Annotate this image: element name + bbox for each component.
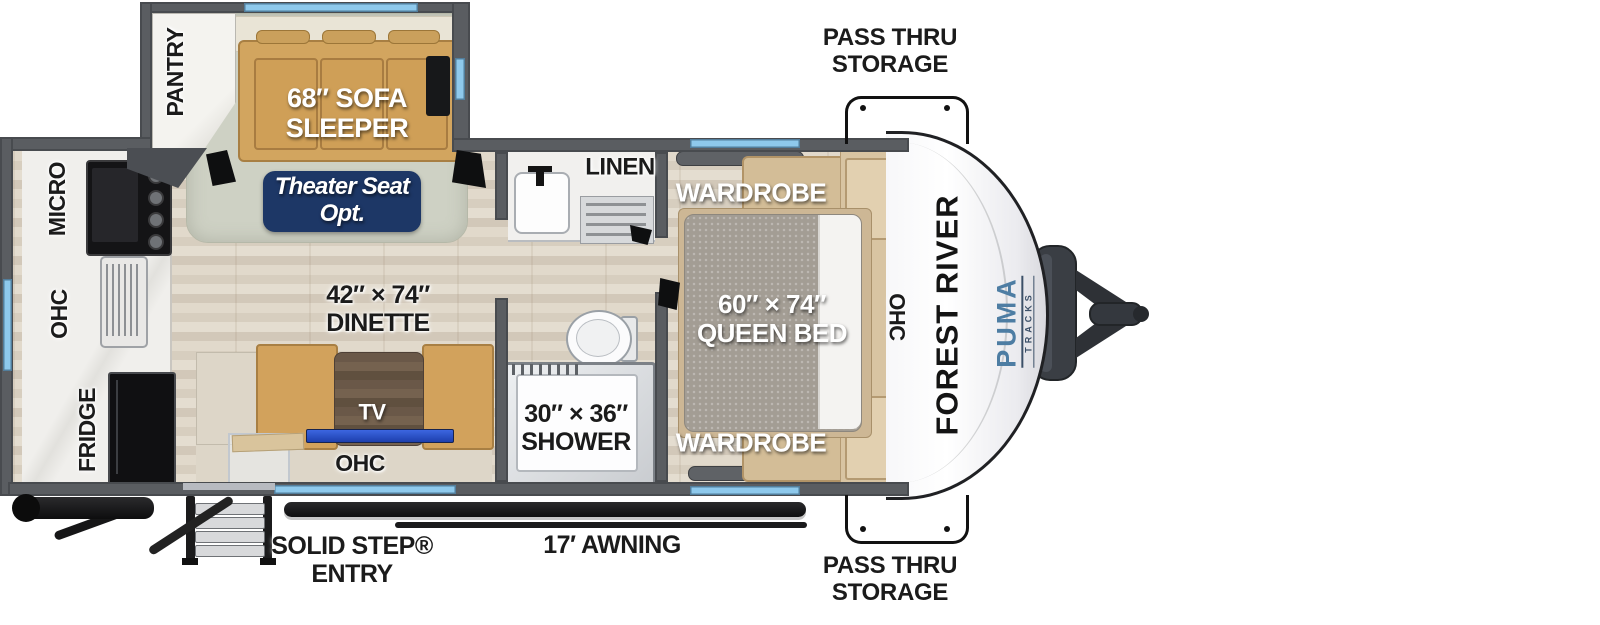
shower-label: 30″ × 36″SHOWER [521, 400, 631, 456]
sofa-headrest [388, 30, 440, 44]
queen-bed-label: 60″ × 74″QUEEN BED [697, 290, 847, 348]
micro-label: MICRO [45, 162, 71, 236]
bedroom-door-swing [658, 278, 680, 310]
rv-floorplan: PANTRY 68″ SOFASLEEPER Theater SeatOpt. … [0, 0, 1600, 625]
kitchen-ohc-label: OHC [47, 289, 73, 339]
bath-wall-left-lower [495, 298, 508, 482]
wardrobe-bottom-label: WARDROBE [676, 428, 827, 457]
top-wall-main [452, 138, 909, 152]
pass-thru-door-bottom [845, 495, 969, 544]
slideout-window [244, 3, 418, 12]
step-tread [195, 531, 265, 543]
bath-wall-left-upper [495, 152, 508, 220]
tv-label: TV [358, 401, 385, 426]
sink-grate [106, 264, 138, 336]
fridge [108, 372, 176, 486]
sofa-headrest [256, 30, 310, 44]
pantry-label: PANTRY [163, 28, 189, 117]
bedroom-window-top [690, 139, 800, 148]
door-latch-dot [860, 105, 866, 111]
slide-trim-right [452, 150, 486, 188]
sofa-headrest [322, 30, 376, 44]
rear-bumper-cap [12, 494, 40, 522]
door-latch-dot [944, 526, 950, 532]
dinette-ohc-label: OHC [335, 451, 385, 477]
dinette-label: 42″ × 74″DINETTE [326, 281, 430, 337]
stove-burner [148, 190, 164, 206]
forest-river-brand: FOREST RIVER [931, 194, 966, 435]
entry-threshold [183, 483, 275, 490]
puma-logo-text: PUMA [991, 276, 1023, 368]
stove-burner [148, 234, 164, 250]
sofa-end-cabinet [426, 56, 450, 116]
awning-rail [395, 522, 807, 528]
fridge-door-line [116, 380, 118, 474]
step-tread [195, 545, 265, 557]
bath-wall-right-lower [655, 292, 668, 482]
shower-towel-bar [512, 364, 582, 375]
bath-wall-right-upper [655, 152, 668, 238]
bath-faucet-stem [536, 166, 544, 186]
linen-label: LINEN [585, 155, 655, 182]
sofa-label: 68″ SOFASLEEPER [286, 83, 409, 143]
pass-thru-top-label: PASS THRUSTORAGE [823, 25, 957, 79]
bedroom-ohc-label: OHC [884, 293, 909, 340]
oven-door [92, 168, 138, 242]
tv-bar [306, 429, 454, 443]
entry-shelf [232, 433, 305, 453]
theater-seat-option-label: Theater SeatOpt. [275, 174, 409, 228]
puma-tracks-logo: PUMA TRACKS [991, 276, 1034, 368]
door-latch-dot [860, 526, 866, 532]
rear-window [3, 279, 12, 371]
awning-tube [284, 502, 806, 517]
pass-thru-door-top [845, 96, 969, 144]
toilet-seat [576, 319, 620, 357]
solid-step-entry-label: SOLID STEP®ENTRY [271, 532, 433, 588]
stove-burner [148, 212, 164, 228]
wardrobe-top-label: WARDROBE [676, 178, 827, 207]
slideout-left-wall [140, 2, 152, 151]
bedroom-window-bottom [690, 486, 800, 495]
puma-tracks-text: TRACKS [1024, 276, 1035, 368]
pass-thru-bottom-label: PASS THRUSTORAGE [823, 553, 957, 607]
step-foot [182, 558, 198, 565]
door-latch-dot [944, 105, 950, 111]
dinette-window [274, 485, 456, 494]
fridge-label: FRIDGE [75, 388, 101, 472]
slideout-side-window [455, 58, 465, 100]
awning-label: 17′ AWNING [543, 531, 681, 559]
